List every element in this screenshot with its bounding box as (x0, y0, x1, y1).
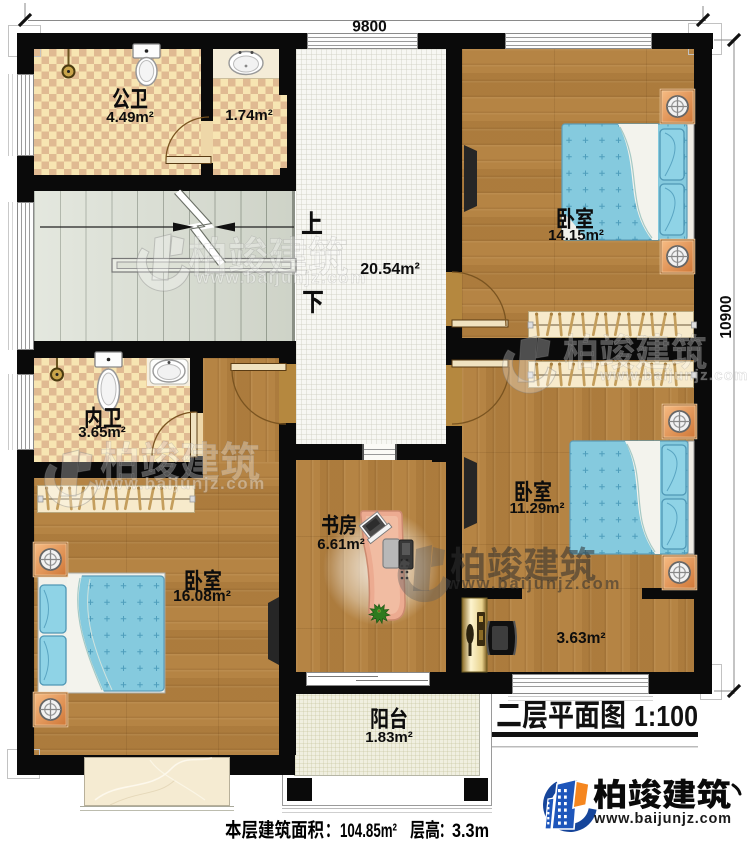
svg-text:www.baijunjz.com: www.baijunjz.com (446, 575, 621, 593)
svg-text:11.29m²: 11.29m² (509, 500, 564, 517)
svg-text:16.08m²: 16.08m² (173, 588, 231, 605)
svg-text:www.baijunjz.com: www.baijunjz.com (599, 367, 749, 384)
svg-text:3.3m: 3.3m (452, 821, 489, 842)
svg-text:9800: 9800 (352, 19, 386, 36)
svg-text:10900: 10900 (718, 295, 735, 338)
svg-text:20.54m²: 20.54m² (360, 261, 420, 278)
svg-text:1.83m²: 1.83m² (365, 729, 413, 746)
svg-text:1.74m²: 1.74m² (225, 107, 273, 124)
svg-text:104.85m²: 104.85m² (340, 821, 397, 842)
svg-text:3.63m²: 3.63m² (556, 630, 605, 647)
svg-text:www.baijunjz.com: www.baijunjz.com (195, 268, 367, 287)
svg-text:14.15m²: 14.15m² (548, 227, 604, 244)
svg-text:4.49m²: 4.49m² (106, 109, 154, 126)
svg-text:www.baijunjz.com: www.baijunjz.com (94, 474, 266, 493)
svg-text:www.baijunjz.com: www.baijunjz.com (593, 811, 731, 827)
svg-text:3.65m²: 3.65m² (78, 424, 126, 441)
svg-text:1:100: 1:100 (634, 701, 698, 733)
svg-text:6.61m²: 6.61m² (317, 536, 365, 553)
